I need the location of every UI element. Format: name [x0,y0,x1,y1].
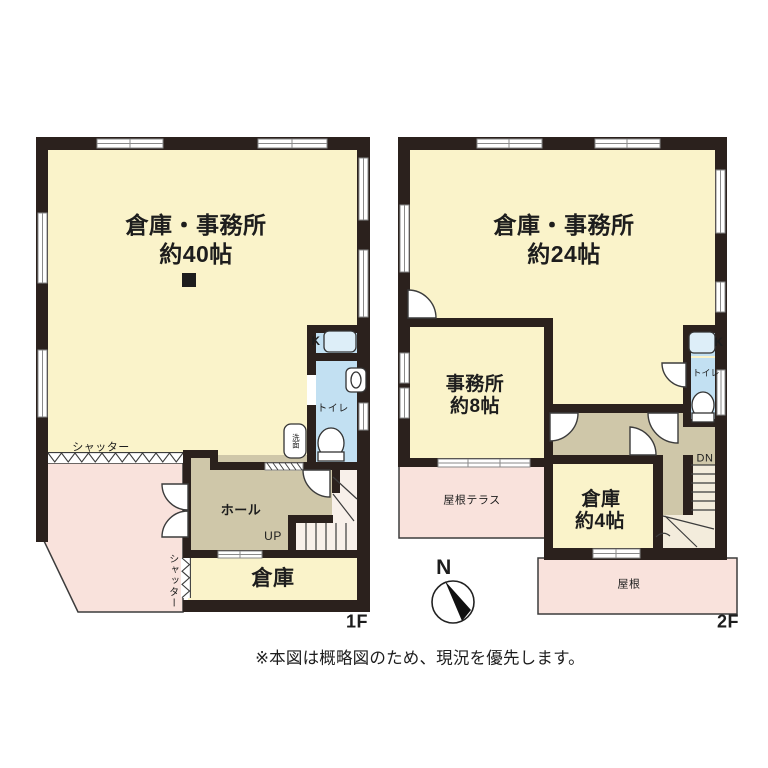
storage-1f-label: 倉庫 [252,567,295,591]
floor1-label: 1F [346,612,368,633]
kitchen-2f-label: K [714,336,723,350]
shutter-side-label: シャッター [166,554,178,609]
room-main-1f-area: 約40帖 [159,241,233,267]
pillar-1f [182,273,196,287]
toilet-1f-label: トイレ [317,403,349,415]
toilet-base-1f [318,452,344,461]
stairwell-2f-winder [663,515,715,548]
compass-n-label: N [436,556,452,580]
office-2f-name: 事務所 [446,374,505,396]
roof-label: 屋根 [618,579,641,592]
floor2-label: 2F [717,612,739,633]
hall-1f-label: ホール [221,504,262,519]
kitchen-1f-label: K [311,335,320,349]
office-2f-area: 約8帖 [450,396,500,418]
compass-circle [432,581,474,623]
washstand-1f-label: 洗面 [291,434,300,449]
disclaimer-note: ※本図は概略図のため、現況を優先します。 [255,650,585,669]
storage-2f-name: 倉庫 [581,489,620,511]
room-main-2f-name: 倉庫・事務所 [494,212,635,238]
stairs-up-label: UP [264,530,282,544]
storage-2f-area: 約4帖 [575,511,625,533]
kitchen-sink-2f [689,332,715,353]
roof-terrace-label: 屋根テラス [443,495,500,508]
stairs-dn-label: DN [697,453,714,466]
toilet-2f-label: トイレ [692,368,719,378]
toilet-base-2f [692,413,714,422]
hand-wash-bowl-1f [351,372,361,388]
floorplan-canvas: 倉庫・事務所 約40帖 シャッター ホール UP 倉庫 シャッター K トイレ … [0,0,768,768]
door-opening [307,375,316,405]
shutter-front-label: シャッター [72,442,130,455]
room-main-2f-area: 約24帖 [527,241,601,267]
north-compass [432,581,474,623]
kitchen-sink-1f [324,331,356,352]
room-main-1f-name: 倉庫・事務所 [126,212,267,238]
stairwell-2f-run [691,465,715,515]
